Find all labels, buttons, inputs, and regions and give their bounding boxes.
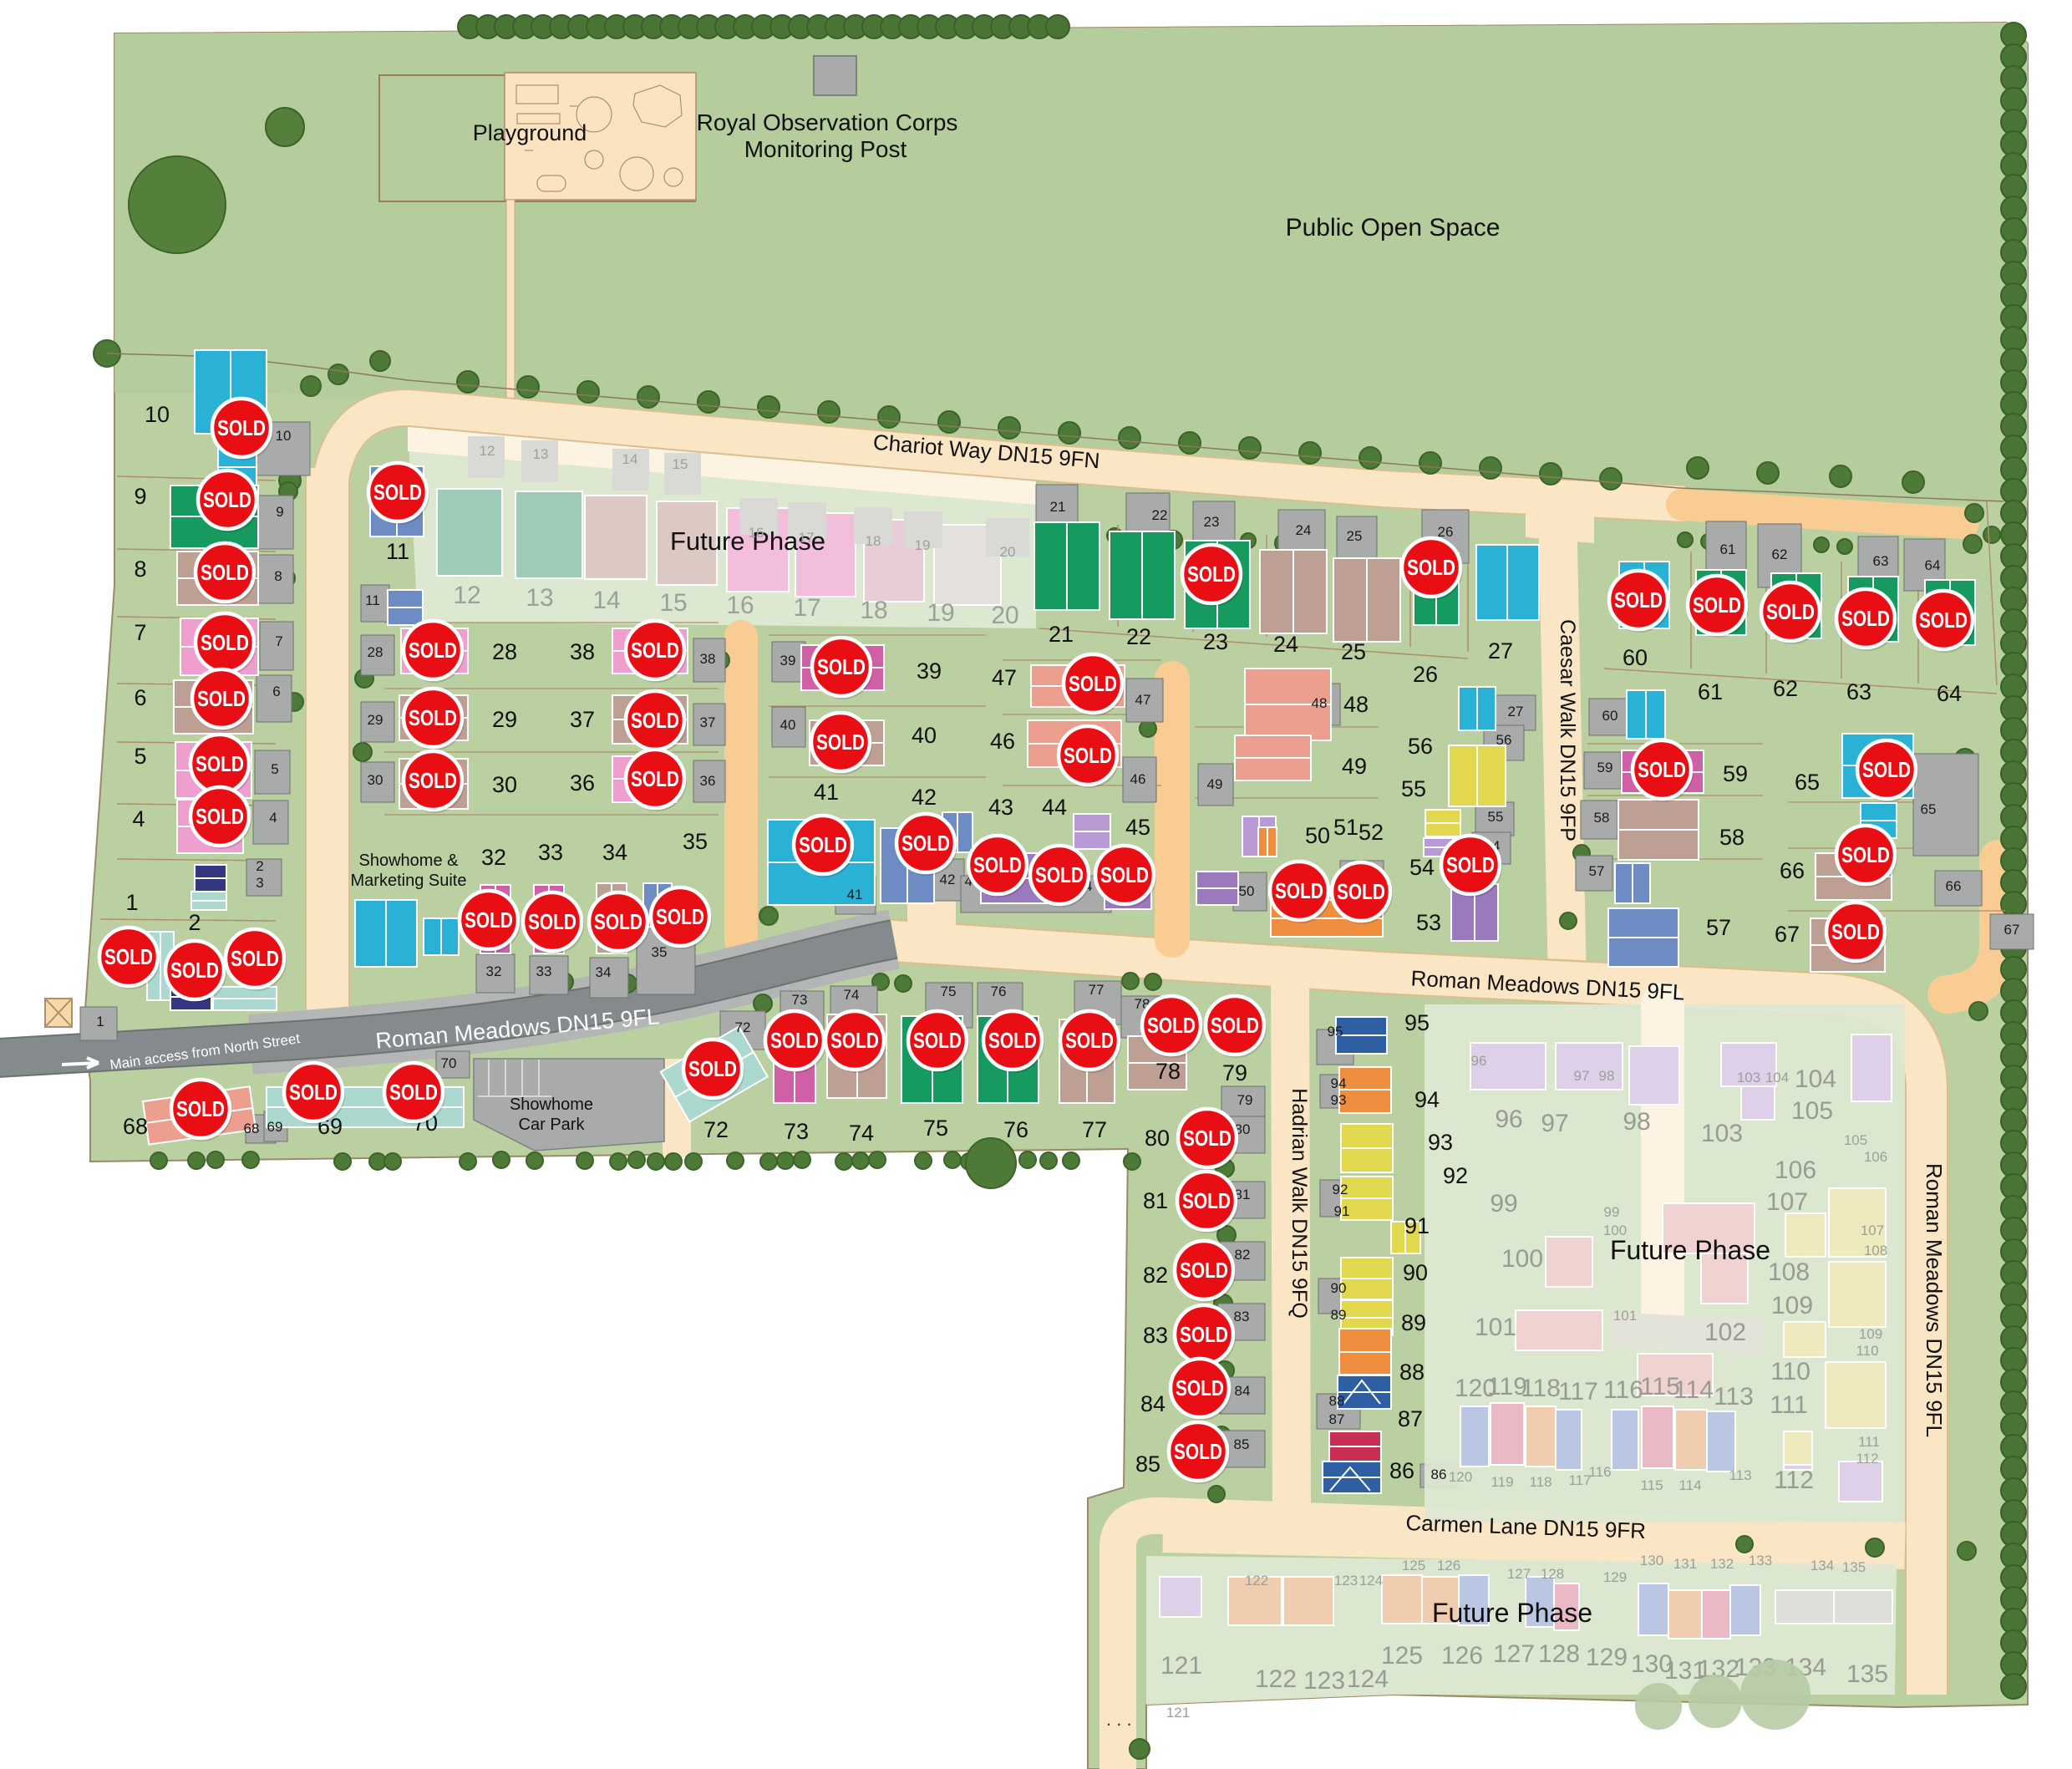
svg-text:33: 33 xyxy=(536,963,552,979)
svg-text:49: 49 xyxy=(1342,754,1367,779)
svg-text:85: 85 xyxy=(1234,1436,1250,1452)
svg-text:SOLD: SOLD xyxy=(1176,1375,1224,1400)
svg-text:SOLD: SOLD xyxy=(1187,562,1236,587)
svg-text:4: 4 xyxy=(269,810,277,826)
svg-text:26: 26 xyxy=(1413,662,1438,687)
svg-text:107: 107 xyxy=(1861,1223,1884,1238)
svg-text:68: 68 xyxy=(123,1114,148,1139)
svg-text:SOLD: SOLD xyxy=(217,415,266,440)
svg-text:48: 48 xyxy=(1343,692,1369,717)
svg-text:. . .: . . . xyxy=(1106,1709,1132,1730)
svg-text:87: 87 xyxy=(1398,1406,1423,1431)
svg-text:SOLD: SOLD xyxy=(1614,587,1663,613)
svg-text:109: 109 xyxy=(1859,1326,1882,1342)
svg-text:21: 21 xyxy=(1050,499,1066,515)
svg-text:SOLD: SOLD xyxy=(594,909,642,934)
svg-text:90: 90 xyxy=(1403,1260,1428,1285)
svg-text:120: 120 xyxy=(1455,1375,1496,1402)
svg-text:90: 90 xyxy=(1331,1280,1347,1296)
svg-text:Public Open Space: Public Open Space xyxy=(1286,214,1501,241)
svg-text:128: 128 xyxy=(1541,1566,1564,1582)
svg-text:53: 53 xyxy=(1416,910,1441,935)
svg-text:SOLD: SOLD xyxy=(1275,878,1323,903)
svg-text:70: 70 xyxy=(441,1055,457,1071)
svg-text:113: 113 xyxy=(1729,1467,1751,1483)
svg-text:100: 100 xyxy=(1501,1245,1543,1273)
svg-text:104: 104 xyxy=(1765,1070,1789,1085)
svg-text:61: 61 xyxy=(1720,541,1736,557)
svg-text:10: 10 xyxy=(276,428,292,444)
svg-text:69: 69 xyxy=(267,1119,283,1135)
svg-text:33: 33 xyxy=(538,840,563,865)
svg-text:58: 58 xyxy=(1719,825,1744,850)
svg-text:SOLD: SOLD xyxy=(409,638,457,663)
svg-text:102: 102 xyxy=(1704,1319,1746,1346)
svg-text:54: 54 xyxy=(1409,855,1435,880)
svg-text:110: 110 xyxy=(1856,1343,1878,1359)
svg-text:SOLD: SOLD xyxy=(1693,592,1741,618)
svg-text:62: 62 xyxy=(1773,676,1798,701)
svg-text:Playground: Playground xyxy=(473,120,587,145)
svg-text:SOLD: SOLD xyxy=(631,708,679,733)
svg-text:50: 50 xyxy=(1239,883,1255,899)
svg-text:101: 101 xyxy=(1613,1308,1637,1324)
svg-text:97: 97 xyxy=(1574,1068,1590,1084)
svg-text:SOLD: SOLD xyxy=(1831,919,1880,944)
svg-text:13: 13 xyxy=(533,446,549,462)
svg-text:115: 115 xyxy=(1640,1477,1663,1493)
svg-text:56: 56 xyxy=(1496,732,1512,748)
svg-text:30: 30 xyxy=(492,772,517,797)
svg-text:Caesar Walk DN15 9FP: Caesar Walk DN15 9FP xyxy=(1556,619,1579,841)
svg-text:7: 7 xyxy=(134,620,146,645)
svg-text:74: 74 xyxy=(844,987,860,1003)
svg-text:Hadrian Walk DN15 9FQ: Hadrian Walk DN15 9FQ xyxy=(1287,1088,1311,1319)
svg-text:98: 98 xyxy=(1623,1108,1650,1136)
svg-text:103: 103 xyxy=(1701,1120,1743,1147)
svg-text:78: 78 xyxy=(1155,1059,1181,1084)
svg-text:123: 123 xyxy=(1334,1573,1358,1589)
svg-text:SOLD: SOLD xyxy=(1841,842,1890,867)
svg-text:120: 120 xyxy=(1449,1469,1472,1485)
svg-text:1: 1 xyxy=(96,1014,104,1029)
svg-text:123: 123 xyxy=(1303,1667,1345,1695)
svg-text:11: 11 xyxy=(365,592,380,608)
svg-text:25: 25 xyxy=(1341,639,1366,664)
svg-text:42: 42 xyxy=(912,785,937,810)
svg-text:25: 25 xyxy=(1347,528,1363,544)
svg-text:66: 66 xyxy=(1780,858,1805,883)
svg-text:16: 16 xyxy=(726,592,754,619)
svg-text:SOLD: SOLD xyxy=(1064,743,1112,768)
svg-text:125: 125 xyxy=(1381,1642,1423,1670)
svg-text:28: 28 xyxy=(368,644,383,660)
svg-text:81: 81 xyxy=(1143,1188,1168,1213)
svg-text:60: 60 xyxy=(1623,645,1648,670)
svg-text:37: 37 xyxy=(700,714,716,730)
svg-text:84: 84 xyxy=(1235,1383,1251,1399)
svg-text:19: 19 xyxy=(915,537,931,553)
svg-text:66: 66 xyxy=(1946,878,1962,894)
svg-text:23: 23 xyxy=(1204,514,1220,530)
svg-text:4: 4 xyxy=(132,806,145,831)
svg-text:SOLD: SOLD xyxy=(1862,757,1911,782)
svg-text:111: 111 xyxy=(1858,1434,1880,1450)
svg-text:SOLD: SOLD xyxy=(1180,1322,1228,1347)
svg-text:121: 121 xyxy=(1160,1652,1202,1680)
svg-text:2: 2 xyxy=(256,858,263,874)
svg-text:73: 73 xyxy=(792,992,808,1008)
svg-text:128: 128 xyxy=(1538,1640,1580,1668)
svg-text:36: 36 xyxy=(570,770,595,796)
svg-text:40: 40 xyxy=(912,723,937,748)
svg-text:SOLD: SOLD xyxy=(799,832,847,857)
svg-text:99: 99 xyxy=(1604,1204,1620,1220)
svg-text:24: 24 xyxy=(1296,522,1312,538)
svg-text:29: 29 xyxy=(368,712,383,728)
svg-text:38: 38 xyxy=(570,639,595,664)
svg-text:129: 129 xyxy=(1603,1569,1627,1585)
svg-text:Royal Observation Corps: Royal Observation Corps xyxy=(697,109,958,135)
svg-text:Future Phase: Future Phase xyxy=(1432,1598,1592,1628)
svg-text:127: 127 xyxy=(1507,1566,1531,1582)
svg-text:29: 29 xyxy=(492,707,517,732)
svg-text:35: 35 xyxy=(683,829,708,854)
svg-text:129: 129 xyxy=(1586,1644,1628,1671)
svg-text:67: 67 xyxy=(2004,922,2020,938)
svg-text:Future Phase: Future Phase xyxy=(1610,1235,1770,1265)
svg-text:116: 116 xyxy=(1588,1464,1611,1480)
svg-text:135: 135 xyxy=(1846,1660,1888,1688)
svg-text:22: 22 xyxy=(1152,507,1168,523)
svg-text:82: 82 xyxy=(1235,1247,1251,1263)
svg-text:130: 130 xyxy=(1640,1553,1663,1568)
svg-text:27: 27 xyxy=(1488,638,1513,663)
svg-text:88: 88 xyxy=(1399,1360,1424,1385)
svg-text:SOLD: SOLD xyxy=(1766,599,1815,624)
svg-text:SOLD: SOLD xyxy=(201,560,249,585)
svg-text:SOLD: SOLD xyxy=(1407,555,1455,580)
svg-text:SOLD: SOLD xyxy=(1638,757,1686,782)
svg-text:111: 111 xyxy=(1770,1391,1808,1419)
svg-text:18: 18 xyxy=(866,533,881,549)
svg-text:118: 118 xyxy=(1529,1474,1551,1490)
svg-text:75: 75 xyxy=(941,984,957,999)
svg-text:5: 5 xyxy=(134,744,146,769)
svg-text:92: 92 xyxy=(1333,1182,1348,1197)
svg-text:59: 59 xyxy=(1597,760,1613,775)
svg-text:SOLD: SOLD xyxy=(1183,1126,1232,1151)
svg-text:17: 17 xyxy=(799,530,815,546)
svg-text:119: 119 xyxy=(1491,1474,1513,1490)
svg-text:131: 131 xyxy=(1673,1556,1697,1572)
svg-text:SOLD: SOLD xyxy=(631,638,679,663)
svg-text:6: 6 xyxy=(134,685,146,710)
svg-text:15: 15 xyxy=(673,456,688,472)
svg-text:80: 80 xyxy=(1145,1126,1170,1151)
svg-text:108: 108 xyxy=(1864,1243,1887,1258)
svg-text:41: 41 xyxy=(814,780,839,805)
svg-text:SOLD: SOLD xyxy=(770,1028,819,1053)
svg-text:110: 110 xyxy=(1770,1358,1810,1385)
svg-text:112: 112 xyxy=(1856,1451,1878,1467)
svg-text:22: 22 xyxy=(1126,624,1151,649)
svg-text:39: 39 xyxy=(780,653,796,668)
svg-text:58: 58 xyxy=(1594,810,1610,826)
svg-text:1: 1 xyxy=(125,890,138,915)
svg-text:135: 135 xyxy=(1842,1559,1866,1575)
svg-text:Showhome &: Showhome & xyxy=(359,851,460,870)
svg-text:SOLD: SOLD xyxy=(1337,879,1385,904)
svg-text:19: 19 xyxy=(927,599,954,627)
svg-text:45: 45 xyxy=(1125,815,1150,840)
svg-text:SOLD: SOLD xyxy=(1174,1439,1222,1464)
svg-text:91: 91 xyxy=(1404,1213,1430,1238)
svg-text:97: 97 xyxy=(1541,1110,1568,1137)
svg-text:SOLD: SOLD xyxy=(409,768,457,793)
svg-text:92: 92 xyxy=(1443,1163,1468,1188)
svg-text:34: 34 xyxy=(602,840,627,865)
svg-text:SOLD: SOLD xyxy=(289,1080,338,1105)
svg-text:41: 41 xyxy=(847,887,863,902)
svg-text:109: 109 xyxy=(1771,1292,1813,1319)
svg-text:24: 24 xyxy=(1273,632,1298,657)
svg-text:SOLD: SOLD xyxy=(196,751,244,776)
svg-text:2: 2 xyxy=(188,910,201,935)
svg-text:SOLD: SOLD xyxy=(231,946,279,971)
svg-text:47: 47 xyxy=(992,665,1017,690)
svg-text:Car Park: Car Park xyxy=(519,1116,586,1134)
svg-text:126: 126 xyxy=(1441,1642,1483,1670)
svg-text:10: 10 xyxy=(145,402,170,427)
svg-text:12: 12 xyxy=(480,443,495,459)
svg-text:38: 38 xyxy=(700,651,716,667)
svg-text:122: 122 xyxy=(1245,1573,1268,1589)
svg-text:126: 126 xyxy=(1437,1558,1460,1573)
svg-text:9: 9 xyxy=(276,504,283,520)
svg-text:46: 46 xyxy=(1130,771,1146,787)
svg-text:57: 57 xyxy=(1706,915,1731,940)
svg-text:SOLD: SOLD xyxy=(465,907,513,933)
svg-text:63: 63 xyxy=(1846,679,1871,704)
svg-text:Monitoring Post: Monitoring Post xyxy=(744,136,907,162)
svg-text:55: 55 xyxy=(1401,776,1426,801)
svg-text:65: 65 xyxy=(1795,770,1820,795)
svg-text:85: 85 xyxy=(1135,1451,1160,1477)
svg-text:79: 79 xyxy=(1237,1092,1253,1108)
svg-text:9: 9 xyxy=(134,484,146,509)
svg-text:108: 108 xyxy=(1768,1258,1810,1286)
svg-text:Marketing Suite: Marketing Suite xyxy=(351,872,467,890)
svg-text:72: 72 xyxy=(735,1019,751,1035)
svg-text:49: 49 xyxy=(1207,776,1223,792)
svg-text:88: 88 xyxy=(1329,1393,1345,1409)
svg-text:SOLD: SOLD xyxy=(1211,1013,1259,1038)
svg-text:44: 44 xyxy=(1042,795,1067,820)
svg-text:27: 27 xyxy=(1508,704,1524,719)
svg-text:20: 20 xyxy=(1000,544,1016,560)
svg-text:SOLD: SOLD xyxy=(631,766,679,791)
svg-text:51: 51 xyxy=(1333,815,1358,840)
svg-text:SOLD: SOLD xyxy=(1065,1028,1114,1053)
svg-text:99: 99 xyxy=(1490,1190,1517,1217)
svg-text:12: 12 xyxy=(453,582,480,609)
svg-text:39: 39 xyxy=(917,658,942,684)
svg-text:28: 28 xyxy=(492,639,517,664)
svg-text:101: 101 xyxy=(1475,1314,1516,1341)
svg-text:86: 86 xyxy=(1389,1458,1414,1483)
svg-text:76: 76 xyxy=(991,984,1007,999)
svg-text:125: 125 xyxy=(1402,1558,1425,1573)
svg-text:93: 93 xyxy=(1331,1092,1347,1108)
svg-text:SOLD: SOLD xyxy=(203,487,251,512)
svg-text:16: 16 xyxy=(749,525,764,541)
svg-text:14: 14 xyxy=(622,451,638,467)
svg-text:50: 50 xyxy=(1305,823,1330,848)
svg-text:74: 74 xyxy=(849,1121,874,1146)
svg-text:127: 127 xyxy=(1493,1640,1535,1668)
svg-text:48: 48 xyxy=(1312,695,1328,711)
svg-text:34: 34 xyxy=(596,964,612,980)
svg-text:64: 64 xyxy=(1925,557,1941,573)
svg-text:52: 52 xyxy=(1358,820,1384,845)
svg-text:SOLD: SOLD xyxy=(1100,862,1149,887)
svg-text:35: 35 xyxy=(652,944,668,960)
svg-text:SOLD: SOLD xyxy=(1182,1188,1231,1213)
svg-text:5: 5 xyxy=(271,761,278,777)
svg-text:82: 82 xyxy=(1143,1263,1168,1288)
svg-text:SOLD: SOLD xyxy=(817,654,866,679)
svg-text:83: 83 xyxy=(1143,1323,1168,1348)
svg-text:SOLD: SOLD xyxy=(830,1028,879,1053)
svg-text:30: 30 xyxy=(368,772,383,788)
svg-text:60: 60 xyxy=(1602,708,1618,724)
svg-text:113: 113 xyxy=(1714,1383,1754,1411)
svg-text:55: 55 xyxy=(1488,809,1504,825)
svg-text:84: 84 xyxy=(1140,1391,1165,1416)
svg-text:107: 107 xyxy=(1766,1188,1808,1216)
svg-text:62: 62 xyxy=(1772,546,1788,562)
svg-text:65: 65 xyxy=(1921,801,1937,817)
svg-text:75: 75 xyxy=(923,1116,948,1141)
svg-text:SOLD: SOLD xyxy=(409,705,457,730)
svg-text:6: 6 xyxy=(272,684,280,699)
svg-text:SOLD: SOLD xyxy=(1446,852,1495,877)
svg-text:37: 37 xyxy=(570,707,595,732)
svg-text:18: 18 xyxy=(860,597,887,624)
svg-text:8: 8 xyxy=(134,557,146,582)
svg-text:96: 96 xyxy=(1495,1106,1522,1133)
svg-text:SOLD: SOLD xyxy=(196,804,244,829)
svg-text:14: 14 xyxy=(592,587,620,614)
svg-text:114: 114 xyxy=(1678,1477,1701,1493)
svg-text:83: 83 xyxy=(1234,1309,1250,1324)
svg-text:59: 59 xyxy=(1723,761,1748,786)
svg-text:73: 73 xyxy=(784,1119,809,1144)
svg-text:133: 133 xyxy=(1749,1553,1772,1568)
svg-text:105: 105 xyxy=(1844,1132,1867,1148)
svg-text:103: 103 xyxy=(1737,1070,1760,1085)
svg-text:115: 115 xyxy=(1640,1373,1680,1400)
svg-text:42: 42 xyxy=(940,872,956,887)
svg-text:SOLD: SOLD xyxy=(973,852,1022,877)
svg-text:SOLD: SOLD xyxy=(1147,1013,1196,1038)
svg-text:13: 13 xyxy=(526,584,553,612)
svg-text:40: 40 xyxy=(780,717,796,733)
svg-text:95: 95 xyxy=(1404,1010,1430,1035)
svg-text:106: 106 xyxy=(1775,1156,1816,1184)
svg-text:32: 32 xyxy=(486,963,502,979)
svg-text:15: 15 xyxy=(659,589,687,617)
svg-text:105: 105 xyxy=(1791,1097,1833,1125)
svg-text:124: 124 xyxy=(1359,1573,1383,1589)
svg-text:86: 86 xyxy=(1431,1467,1447,1482)
svg-text:SOLD: SOLD xyxy=(104,944,153,969)
svg-text:SOLD: SOLD xyxy=(170,958,219,983)
svg-text:77: 77 xyxy=(1082,1117,1107,1142)
svg-text:61: 61 xyxy=(1698,679,1723,704)
svg-text:47: 47 xyxy=(1135,692,1151,708)
svg-text:SOLD: SOLD xyxy=(1069,671,1117,696)
svg-text:117: 117 xyxy=(1558,1378,1598,1406)
svg-text:94: 94 xyxy=(1414,1087,1440,1112)
svg-text:91: 91 xyxy=(1334,1203,1350,1219)
svg-text:SOLD: SOLD xyxy=(688,1056,737,1081)
svg-text:SOLD: SOLD xyxy=(197,686,246,711)
svg-text:SOLD: SOLD xyxy=(913,1028,962,1053)
svg-text:SOLD: SOLD xyxy=(1919,607,1968,633)
svg-text:95: 95 xyxy=(1328,1024,1343,1040)
svg-text:SOLD: SOLD xyxy=(389,1080,438,1105)
svg-text:SOLD: SOLD xyxy=(656,904,704,929)
svg-text:68: 68 xyxy=(244,1121,260,1136)
svg-text:8: 8 xyxy=(274,568,282,584)
svg-text:Roman Meadows DN15 9FL: Roman Meadows DN15 9FL xyxy=(1922,1163,1947,1437)
svg-text:SOLD: SOLD xyxy=(901,831,950,856)
svg-text:93: 93 xyxy=(1428,1130,1453,1155)
svg-text:56: 56 xyxy=(1408,734,1433,759)
svg-text:63: 63 xyxy=(1873,553,1889,569)
svg-text:36: 36 xyxy=(700,773,716,789)
svg-text:7: 7 xyxy=(275,633,282,649)
svg-text:79: 79 xyxy=(1222,1060,1247,1085)
svg-text:89: 89 xyxy=(1401,1310,1426,1335)
svg-text:72: 72 xyxy=(703,1117,729,1142)
svg-text:116: 116 xyxy=(1603,1376,1643,1404)
svg-text:SOLD: SOLD xyxy=(201,630,249,655)
svg-text:94: 94 xyxy=(1331,1075,1347,1091)
svg-text:77: 77 xyxy=(1089,982,1105,998)
svg-text:122: 122 xyxy=(1255,1665,1297,1693)
svg-text:96: 96 xyxy=(1471,1053,1487,1069)
svg-text:106: 106 xyxy=(1864,1149,1887,1165)
svg-text:SOLD: SOLD xyxy=(373,480,422,505)
svg-text:11: 11 xyxy=(386,539,409,564)
svg-text:26: 26 xyxy=(1438,524,1454,540)
svg-text:76: 76 xyxy=(1003,1117,1028,1142)
svg-text:67: 67 xyxy=(1775,922,1800,947)
svg-text:134: 134 xyxy=(1810,1558,1834,1573)
svg-text:132: 132 xyxy=(1710,1556,1734,1572)
svg-text:SOLD: SOLD xyxy=(1180,1258,1228,1283)
svg-text:SOLD: SOLD xyxy=(988,1028,1037,1053)
svg-text:SOLD: SOLD xyxy=(1841,606,1890,631)
svg-text:104: 104 xyxy=(1795,1065,1836,1093)
svg-text:SOLD: SOLD xyxy=(1035,862,1084,887)
svg-text:98: 98 xyxy=(1599,1068,1615,1084)
svg-text:SOLD: SOLD xyxy=(176,1096,225,1121)
svg-text:21: 21 xyxy=(1049,622,1074,647)
